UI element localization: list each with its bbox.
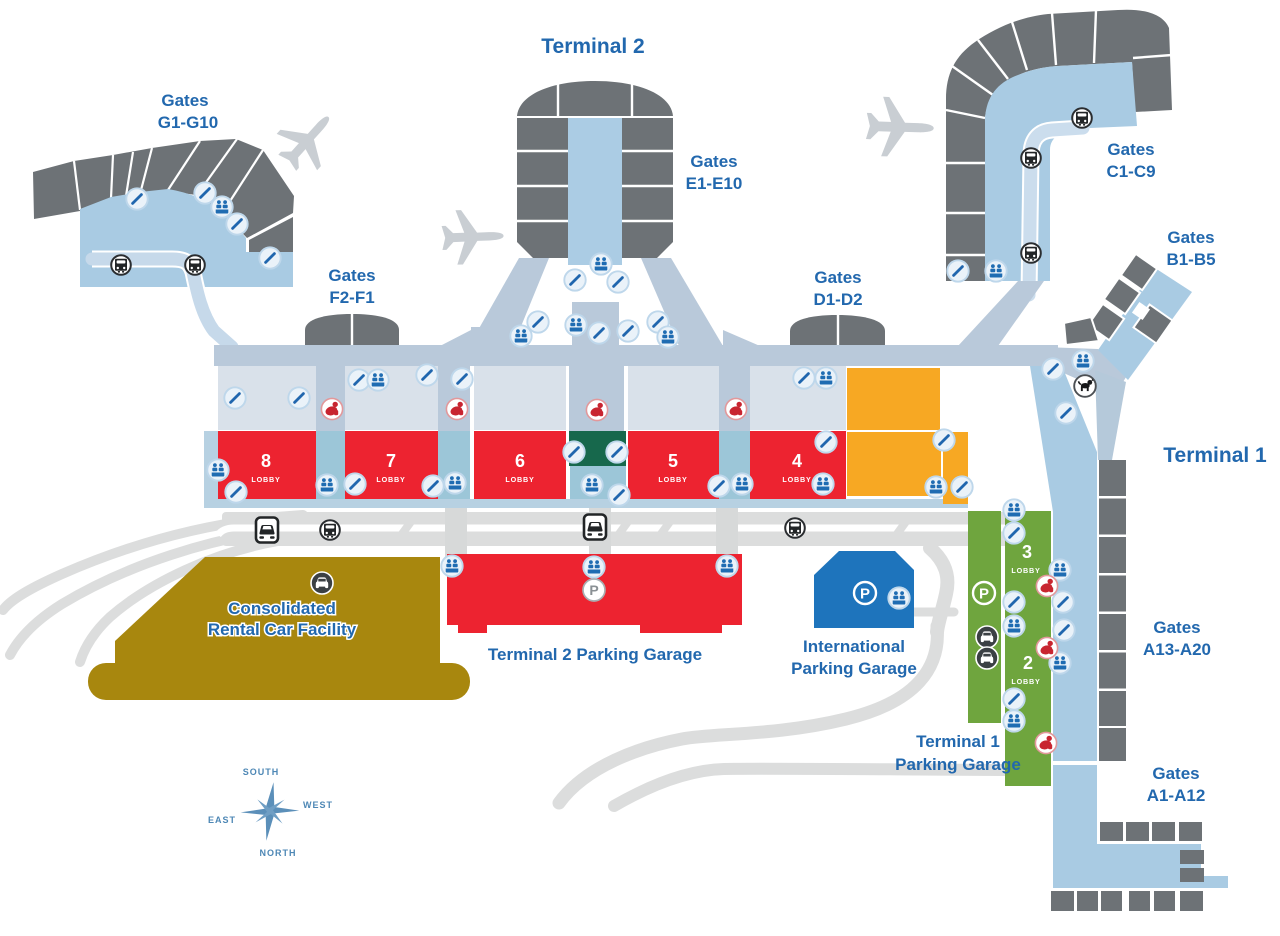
svg-text:LOBBY: LOBBY: [251, 475, 280, 484]
svg-text:7: 7: [386, 451, 396, 471]
svg-text:LOBBY: LOBBY: [1011, 677, 1040, 686]
svg-text:NORTH: NORTH: [260, 848, 297, 858]
svg-text:4: 4: [792, 451, 802, 471]
svg-text:International: International: [803, 637, 905, 656]
svg-text:LOBBY: LOBBY: [658, 475, 687, 484]
svg-text:A1-A12: A1-A12: [1147, 786, 1206, 805]
svg-text:B1-B5: B1-B5: [1166, 250, 1215, 269]
svg-text:2: 2: [1023, 653, 1033, 673]
svg-text:LOBBY: LOBBY: [505, 475, 534, 484]
svg-text:Gates: Gates: [1152, 764, 1199, 783]
svg-text:3: 3: [1022, 542, 1032, 562]
svg-text:Gates: Gates: [328, 266, 375, 285]
svg-text:Rental Car Facility: Rental Car Facility: [208, 620, 357, 639]
svg-text:WEST: WEST: [303, 800, 333, 810]
svg-text:Parking Garage: Parking Garage: [791, 659, 917, 678]
svg-text:Gates: Gates: [814, 268, 861, 287]
svg-text:Terminal 1: Terminal 1: [1163, 444, 1267, 467]
svg-text:LOBBY: LOBBY: [376, 475, 405, 484]
svg-text:Gates: Gates: [1107, 140, 1154, 159]
svg-text:EAST: EAST: [208, 815, 236, 825]
svg-text:Gates: Gates: [161, 91, 208, 110]
svg-text:E1-E10: E1-E10: [686, 174, 743, 193]
svg-text:8: 8: [261, 451, 271, 471]
svg-text:Parking Garage: Parking Garage: [895, 755, 1021, 774]
svg-text:A13-A20: A13-A20: [1143, 640, 1211, 659]
svg-text:Terminal 2 Parking Garage: Terminal 2 Parking Garage: [488, 645, 702, 664]
svg-text:D1-D2: D1-D2: [813, 290, 862, 309]
svg-text:Consolidated: Consolidated: [228, 599, 336, 618]
svg-text:LOBBY: LOBBY: [782, 475, 811, 484]
svg-text:Gates: Gates: [1167, 228, 1214, 247]
svg-text:Terminal 2: Terminal 2: [541, 35, 644, 58]
svg-text:5: 5: [668, 451, 678, 471]
svg-text:Terminal 1: Terminal 1: [916, 732, 1000, 751]
svg-text:Gates: Gates: [690, 152, 737, 171]
svg-text:F2-F1: F2-F1: [329, 288, 374, 307]
svg-text:C1-C9: C1-C9: [1106, 162, 1155, 181]
svg-text:SOUTH: SOUTH: [243, 767, 280, 777]
svg-text:6: 6: [515, 451, 525, 471]
svg-text:Gates: Gates: [1153, 618, 1200, 637]
svg-text:LOBBY: LOBBY: [1011, 566, 1040, 575]
svg-text:G1-G10: G1-G10: [158, 113, 218, 132]
